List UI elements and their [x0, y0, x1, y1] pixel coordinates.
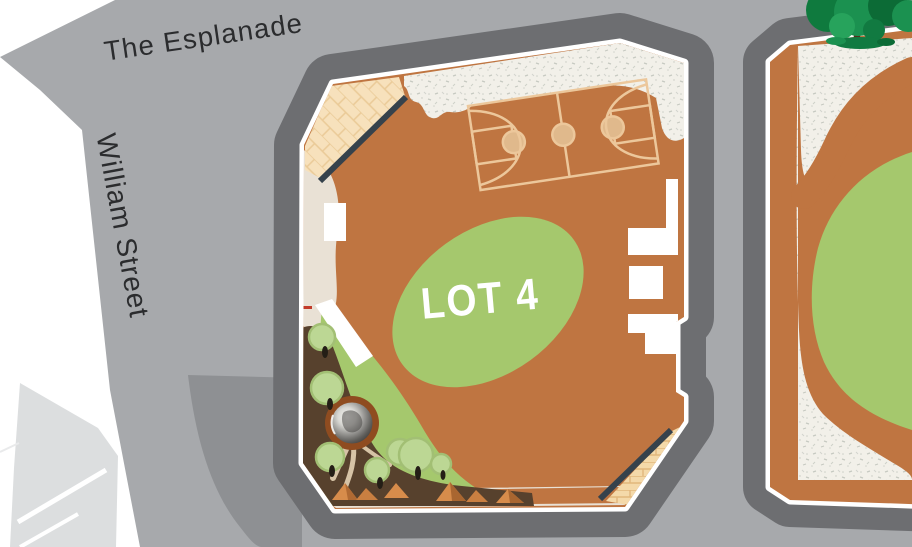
lot4-label: LOT 4 [419, 270, 541, 330]
adjacent-lot-area[interactable] [770, 26, 912, 505]
masterplan-map: The Esplanade William Street LOT 4 [0, 0, 912, 547]
